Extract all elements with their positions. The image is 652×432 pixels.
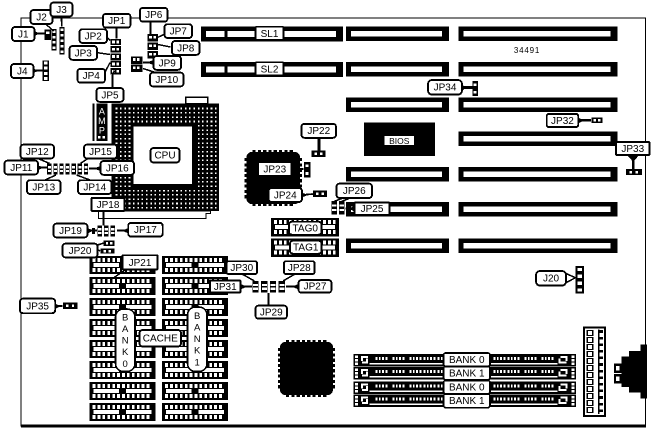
- svg-text:N: N: [122, 336, 129, 347]
- svg-text:N: N: [194, 334, 201, 345]
- svg-text:JP14: JP14: [83, 183, 106, 194]
- svg-text:JP5: JP5: [101, 90, 119, 101]
- svg-text:CACHE: CACHE: [143, 334, 178, 345]
- svg-text:J20: J20: [543, 274, 560, 285]
- svg-text:JP19: JP19: [59, 226, 82, 237]
- svg-text:JP22: JP22: [307, 126, 330, 137]
- svg-text:JP24: JP24: [274, 190, 297, 201]
- svg-text:JP13: JP13: [32, 183, 55, 194]
- svg-text:JP26: JP26: [343, 186, 366, 197]
- svg-text:JP35: JP35: [26, 301, 49, 312]
- svg-text:J2: J2: [36, 12, 47, 23]
- svg-text:JP4: JP4: [83, 71, 101, 82]
- svg-text:TAG1: TAG1: [293, 243, 319, 254]
- svg-text:A: A: [99, 107, 105, 117]
- svg-text:JP28: JP28: [288, 263, 311, 274]
- svg-text:JP30: JP30: [230, 263, 253, 274]
- svg-text:0: 0: [123, 359, 128, 370]
- svg-text:JP8: JP8: [177, 43, 195, 54]
- svg-text:SL2: SL2: [261, 64, 279, 75]
- svg-text:A: A: [122, 324, 129, 335]
- svg-text:B: B: [194, 311, 200, 322]
- svg-text:JP29: JP29: [260, 308, 283, 319]
- svg-text:J1: J1: [18, 29, 29, 40]
- svg-text:1: 1: [195, 358, 200, 369]
- svg-text:K: K: [122, 347, 129, 358]
- svg-text:JP32: JP32: [551, 116, 574, 127]
- svg-text:BANK 1: BANK 1: [449, 396, 485, 407]
- svg-text:JP18: JP18: [97, 200, 120, 211]
- svg-text:K: K: [194, 346, 201, 357]
- svg-text:JP7: JP7: [170, 27, 188, 38]
- svg-text:JP15: JP15: [89, 147, 112, 158]
- svg-text:JP11: JP11: [10, 163, 32, 174]
- svg-text:J4: J4: [17, 66, 28, 77]
- svg-text:JP31: JP31: [214, 282, 237, 293]
- svg-text:BANK 0: BANK 0: [449, 355, 485, 366]
- svg-text:JP23: JP23: [263, 164, 286, 175]
- svg-text:CPU: CPU: [154, 151, 175, 162]
- svg-text:TAG0: TAG0: [293, 224, 319, 235]
- svg-text:JP34: JP34: [434, 83, 457, 94]
- svg-text:BANK 0: BANK 0: [449, 383, 485, 394]
- svg-text:A: A: [194, 323, 201, 334]
- svg-text:JP25: JP25: [361, 204, 384, 215]
- svg-text:34491: 34491: [514, 46, 540, 55]
- svg-text:J3: J3: [56, 5, 67, 16]
- svg-text:P: P: [99, 126, 105, 136]
- svg-text:B: B: [122, 313, 128, 324]
- svg-text:JP10: JP10: [155, 75, 178, 86]
- svg-text:JP21: JP21: [129, 258, 152, 269]
- svg-text:JP1: JP1: [108, 16, 126, 27]
- svg-text:BIOS: BIOS: [389, 136, 410, 146]
- svg-text:JP3: JP3: [75, 48, 93, 59]
- svg-text:JP33: JP33: [621, 144, 644, 155]
- svg-text:JP12: JP12: [26, 147, 49, 158]
- svg-text:JP2: JP2: [85, 32, 103, 43]
- svg-text:JP27: JP27: [304, 282, 327, 293]
- svg-text:BANK 1: BANK 1: [449, 369, 485, 380]
- svg-text:JP20: JP20: [69, 246, 92, 257]
- svg-text:JP17: JP17: [134, 225, 157, 236]
- svg-text:JP6: JP6: [145, 10, 163, 21]
- svg-text:SL1: SL1: [261, 29, 279, 40]
- svg-text:JP9: JP9: [159, 58, 177, 69]
- svg-text:JP16: JP16: [106, 163, 129, 174]
- svg-text:M: M: [98, 116, 106, 126]
